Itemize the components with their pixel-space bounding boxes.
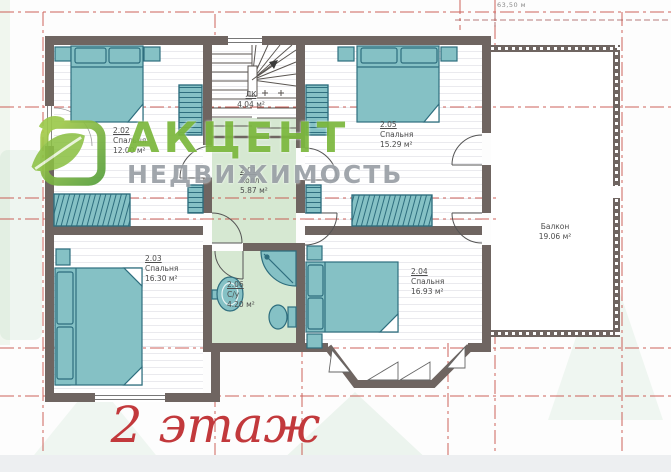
- shower: [261, 251, 296, 286]
- room-label-bathroom: 2.06С/у4.20 м²: [227, 280, 255, 309]
- bed: [55, 249, 142, 385]
- floor-title: 2 этаж: [108, 396, 323, 454]
- bed: [306, 246, 398, 348]
- toilet: [269, 305, 296, 329]
- room-label-bedroom-204: 2.04Спальня16.93 м²: [411, 267, 444, 296]
- brand-subtitle: НЕДВИЖИМОСТЬ: [127, 160, 403, 189]
- room-label-balcony: Балкон19.06 м²: [525, 222, 585, 242]
- room-label-bedroom-203: 2.03Спальня16.30 м²: [145, 254, 178, 283]
- floor-plan: 2.01Холл5.87 м² 2.02Спальня12.00 м² 2.03…: [0, 0, 671, 472]
- agency-logo-icon: [26, 106, 118, 202]
- room-label-stairs: ЛК4.04 м²: [221, 90, 281, 110]
- room-label-bedroom-205: 2.05Спальня15.29 м²: [380, 120, 413, 149]
- balcony-railing: [491, 45, 621, 337]
- brand-name: АКЦЕНТ: [127, 113, 349, 162]
- dimension-line: [455, 13, 671, 27]
- dimension-text: 63,50 м: [497, 1, 526, 9]
- bed: [338, 46, 457, 122]
